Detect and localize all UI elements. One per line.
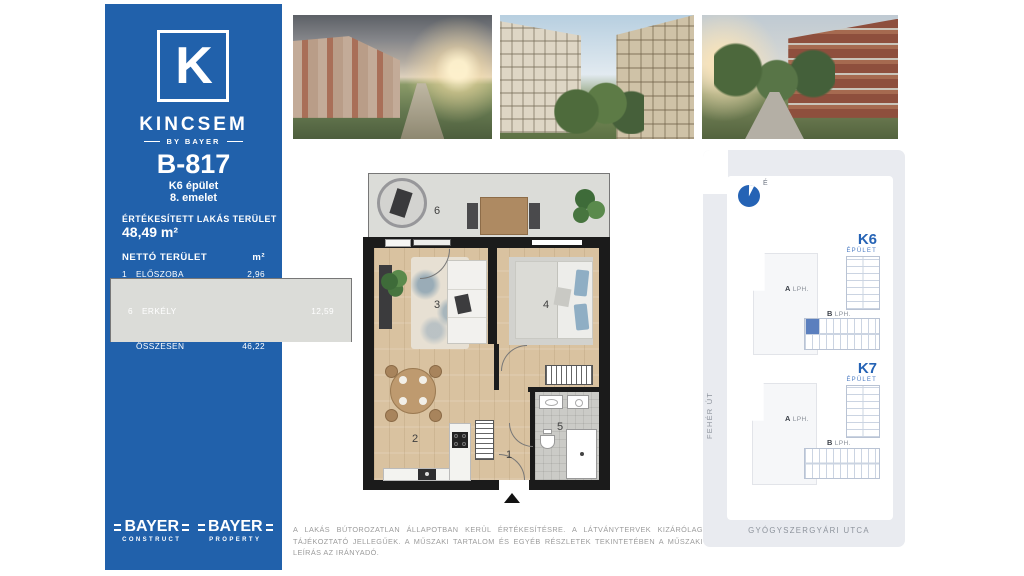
plant: [379, 268, 409, 298]
hall-cabinet: [475, 420, 494, 460]
building-id: K6: [831, 232, 877, 247]
logo-sub: CONSTRUCT: [114, 537, 189, 543]
building-wing-k7-vertical: [846, 385, 880, 438]
map-corner: [703, 150, 728, 194]
room-label-balcony: 6: [434, 205, 440, 217]
net-area-title: NETTÓ TERÜLET: [122, 252, 207, 263]
logo-bars-icon: [114, 524, 121, 531]
compass-label: É: [763, 180, 768, 187]
building-sub: ÉPÜLET: [831, 377, 877, 383]
pillow: [554, 287, 572, 307]
staircase-label-k6-b: B LPH.: [827, 309, 851, 318]
stair-letter: A: [785, 284, 791, 293]
balcony-table: [480, 197, 528, 235]
plant: [573, 207, 589, 223]
apartment-id: B-817: [105, 149, 282, 180]
net-area-unit: m²: [252, 252, 265, 263]
brochure-page: K KINCSEM BY BAYER B-817 K6 épület 8. em…: [0, 0, 1024, 576]
washing-machine: [567, 395, 589, 409]
sold-area-value: 48,49 m²: [122, 224, 178, 240]
wall: [363, 480, 499, 490]
wall: [599, 237, 610, 490]
wardrobe: [545, 365, 593, 385]
floor-line: 8. emelet: [105, 192, 282, 204]
plate: [399, 397, 407, 405]
stair-letter: A: [785, 414, 791, 423]
building-wing-k6-vertical: [846, 256, 880, 310]
building-line: K6 épület: [105, 180, 282, 192]
site-map: É K6 ÉPÜLET A LPH. B LPH. K7 ÉPÜLET A LP…: [703, 150, 905, 547]
plate: [399, 376, 407, 384]
entrance-door: [499, 481, 529, 489]
stair-text: LPH.: [835, 311, 851, 318]
dining-chair: [429, 409, 442, 422]
sold-area-label: ÉRTÉKESÍTETT LAKÁS TERÜLET: [122, 214, 277, 224]
logo-bars-icon: [182, 524, 189, 531]
room-label-bedroom: 4: [543, 299, 549, 311]
photo-building: [293, 36, 400, 118]
bed: [515, 261, 593, 339]
disclaimer-text: A LAKÁS BÚTOROZATLAN ÁLLAPOTBAN KERÜL ÉR…: [293, 524, 703, 559]
plate: [419, 397, 427, 405]
kincsem-logo-icon: K: [157, 30, 229, 102]
stair-text: LPH.: [793, 416, 809, 423]
toilet: [540, 435, 555, 449]
pillow: [574, 269, 590, 296]
room-label-living: 3: [434, 299, 440, 311]
stair-letter: B: [827, 309, 833, 318]
building-id: K7: [831, 361, 877, 376]
stair-letter: B: [827, 438, 833, 447]
kitchen-sink: [418, 469, 436, 480]
logo-word: BAYER: [208, 518, 263, 536]
row-area: 46,22: [242, 341, 265, 351]
wall: [529, 480, 610, 490]
wall: [494, 344, 499, 390]
shower: [566, 429, 597, 479]
blanket: [516, 262, 558, 338]
logo-letter: K: [175, 40, 211, 92]
radiator: [385, 239, 411, 247]
logo-bars-icon: [198, 524, 205, 531]
entrance-arrow-icon: [504, 493, 520, 503]
building-wing-k7-horizontal: [804, 448, 880, 479]
highlighted-unit: [806, 319, 819, 334]
room-label-bath: 5: [557, 421, 563, 433]
stair-text: LPH.: [793, 286, 809, 293]
staircase-label-k7-b: B LPH.: [827, 438, 851, 447]
pillow: [574, 303, 590, 330]
byline-dash: [144, 141, 160, 142]
building-label-k7: K7 ÉPÜLET: [831, 361, 877, 383]
balcony-chair: [529, 203, 540, 229]
brand-name: KINCSEM: [105, 114, 282, 136]
room-label-hall: 1: [506, 449, 512, 461]
wall: [488, 248, 497, 344]
floorplan: 6 3 4 2 1 5: [363, 173, 610, 505]
rendering-photo-2: [500, 15, 694, 139]
row-num: 6: [128, 306, 142, 316]
street-label-feher-ut: FEHÉR ÚT: [705, 375, 720, 455]
row-name: ÖSSZESEN: [136, 341, 242, 351]
sofa: [447, 260, 487, 344]
photo-trees: [554, 75, 643, 135]
building-sub: ÉPÜLET: [831, 248, 877, 254]
rendering-photo-1: [293, 15, 492, 139]
logo-bars-icon: [266, 524, 273, 531]
logo-sub: PROPERTY: [198, 537, 273, 543]
building-label-k6: K6 ÉPÜLET: [831, 232, 877, 254]
room-label-kitchen: 2: [412, 433, 418, 445]
stair-text: LPH.: [835, 440, 851, 447]
bathroom-sink: [539, 395, 563, 409]
byline-text: BY BAYER: [167, 137, 221, 146]
bayer-property-logo: BAYER PROPERTY: [198, 518, 273, 543]
dining-table: [390, 368, 436, 414]
byline-dash: [227, 141, 243, 142]
plate: [419, 376, 427, 384]
street-label-gyogyszergyari-utca: GYÓGYSZERGYÁRI UTCA: [739, 526, 879, 535]
rendering-photo-3: [702, 15, 898, 139]
balcony-chair: [467, 203, 478, 229]
bayer-construct-logo: BAYER CONSTRUCT: [114, 518, 189, 543]
plant: [587, 201, 605, 219]
staircase-label-k6-a: A LPH.: [785, 284, 809, 293]
footer-logos: BAYER CONSTRUCT BAYER PROPERTY: [105, 518, 282, 543]
table-balcony-row: 6 ERKÉLY 12,59: [110, 278, 352, 342]
row-area: 12,59: [311, 306, 334, 316]
row-name: ERKÉLY: [142, 306, 311, 316]
staircase-label-k7-a: A LPH.: [785, 414, 809, 423]
photo-path: [400, 83, 444, 139]
dining-chair: [385, 409, 398, 422]
net-area-header: NETTÓ TERÜLET m²: [105, 252, 282, 263]
area-table: 1 ELŐSZOBA 2,96 2 KONYHA-ÉTKEZŐ 8,97 3 N…: [105, 267, 282, 353]
sidebar: K KINCSEM BY BAYER B-817 K6 épület 8. em…: [105, 4, 282, 570]
logo-word: BAYER: [124, 518, 179, 536]
balcony-sliding-door: [413, 239, 451, 246]
cooktop: [452, 432, 468, 448]
bedroom-window: [531, 239, 583, 246]
wall: [528, 387, 599, 392]
brand-byline: BY BAYER: [105, 137, 282, 146]
compass-icon: [738, 185, 760, 207]
wall: [363, 237, 374, 490]
